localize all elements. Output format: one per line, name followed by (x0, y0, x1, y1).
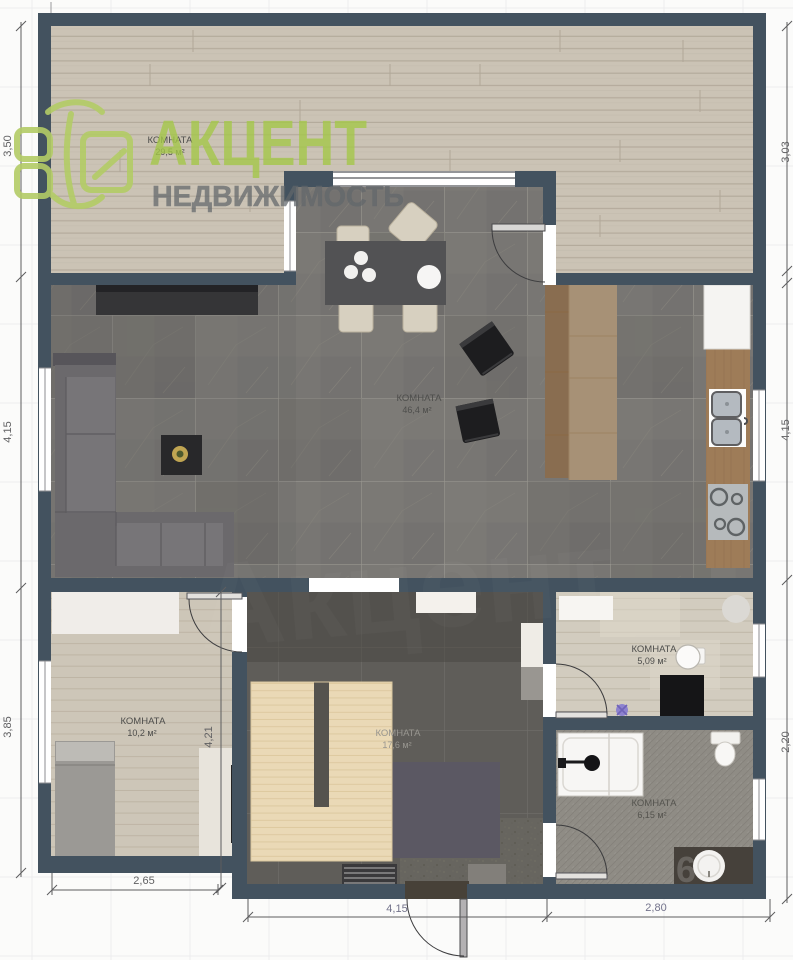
svg-text:6,15 м²: 6,15 м² (637, 810, 666, 820)
svg-text:КОМНАТА: КОМНАТА (396, 393, 442, 404)
svg-text:46,4 м²: 46,4 м² (402, 405, 431, 415)
svg-text:НЕДВИЖИМОСТЬ: НЕДВИЖИМОСТЬ (152, 181, 404, 213)
svg-text:5,09 м²: 5,09 м² (637, 656, 666, 666)
svg-text:АКЦЕНТ: АКЦЕНТ (149, 107, 367, 179)
svg-text:4,15: 4,15 (386, 903, 407, 915)
svg-text:2,20: 2,20 (780, 731, 792, 752)
svg-text:3,03: 3,03 (780, 141, 792, 162)
svg-text:КОМНАТА: КОМНАТА (375, 728, 421, 739)
svg-text:2,65: 2,65 (133, 875, 154, 887)
svg-text:КОМНАТА: КОМНАТА (631, 798, 677, 809)
svg-text:4,21: 4,21 (203, 726, 215, 747)
svg-text:4,15: 4,15 (780, 419, 792, 440)
svg-text:17,6 м²: 17,6 м² (382, 740, 411, 750)
svg-text:2,80: 2,80 (645, 902, 666, 914)
svg-text:КОМНАТА: КОМНАТА (631, 644, 677, 655)
svg-text:3,85: 3,85 (2, 716, 14, 737)
svg-text:10,2 м²: 10,2 м² (127, 728, 156, 738)
svg-text:6: 6 (676, 849, 696, 890)
svg-text:3,50: 3,50 (2, 135, 14, 156)
svg-text:КОМНАТА: КОМНАТА (120, 716, 166, 727)
svg-text:4,15: 4,15 (2, 421, 14, 442)
